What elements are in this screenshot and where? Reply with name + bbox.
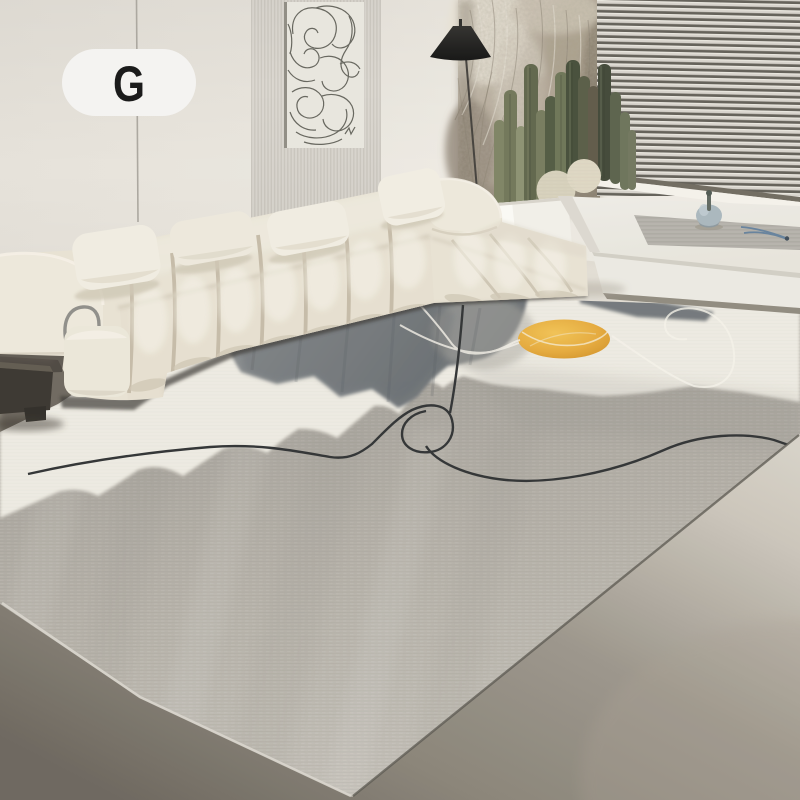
svg-text:G: G xyxy=(113,56,145,112)
